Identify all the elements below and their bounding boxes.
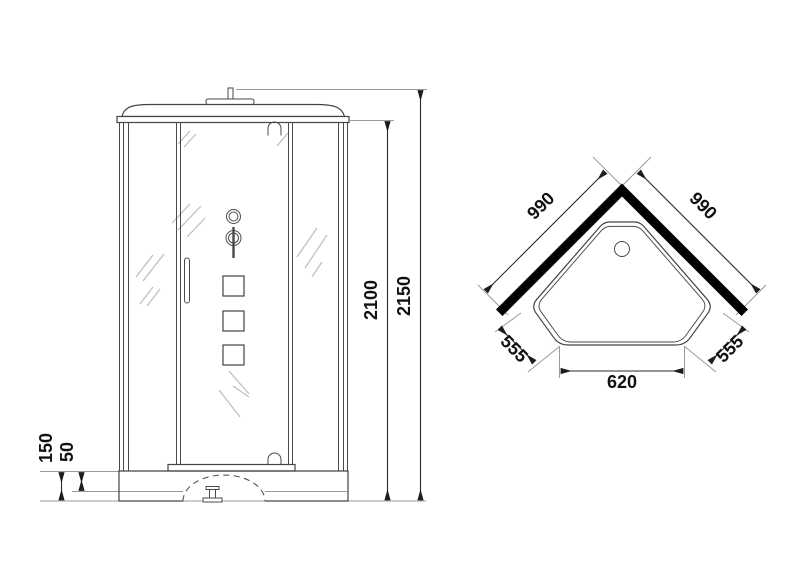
side-extension-left-lower [528, 346, 560, 372]
tray-outline [119, 471, 348, 501]
top-rim [117, 117, 349, 123]
tray-rim-height-label: 50 [57, 442, 77, 462]
body-jet-2 [223, 311, 244, 331]
side-right-label: 555 [712, 331, 747, 366]
side-extension-right-upper [723, 313, 749, 332]
technical-drawing: 2150 2100 150 50 [0, 0, 800, 566]
glass-hatch-marks [136, 131, 327, 417]
dimension-side-right: 555 [710, 328, 747, 366]
side-extension-left-upper [495, 313, 521, 332]
roof-dome [122, 105, 345, 117]
body-jet-1 [223, 276, 244, 296]
control-panel [223, 210, 244, 366]
pentagon-tray [534, 222, 710, 345]
base-height-label: 150 [36, 433, 56, 463]
door-bottom-rail [168, 465, 295, 472]
roof-pipe [228, 88, 233, 100]
side-left-label: 555 [497, 331, 532, 366]
drawing-canvas: 2150 2100 150 50 [0, 0, 800, 566]
dimension-tray-rim-height: 50 [57, 442, 82, 491]
wall-right-label: 990 [686, 188, 721, 223]
roof-plinth [206, 99, 254, 105]
wall-left-label: 990 [523, 188, 558, 223]
dimension-cabin-height: 2100 [361, 122, 388, 501]
side-extension-right-lower [684, 346, 716, 372]
body-jet-3 [223, 345, 244, 365]
dimension-side-left: 555 [497, 328, 534, 366]
overall-height-label: 2150 [394, 276, 414, 316]
apron-cutout-arc [183, 475, 265, 501]
cabin-roof [117, 88, 349, 123]
door-handle [185, 258, 190, 303]
cabin-height-label: 2100 [361, 280, 381, 320]
front-width-label: 620 [607, 372, 637, 392]
top-plan-view: 990 990 555 555 620 [478, 157, 766, 392]
dimension-front-width: 620 [561, 371, 683, 392]
dimension-overall-height: 2150 [394, 91, 421, 501]
front-elevation-view: 2150 2100 150 50 [36, 88, 427, 502]
shower-tray-base [119, 471, 348, 502]
adjustable-foot [203, 487, 222, 503]
door-roller-top [268, 122, 281, 135]
tray-outer-edge [534, 222, 710, 345]
